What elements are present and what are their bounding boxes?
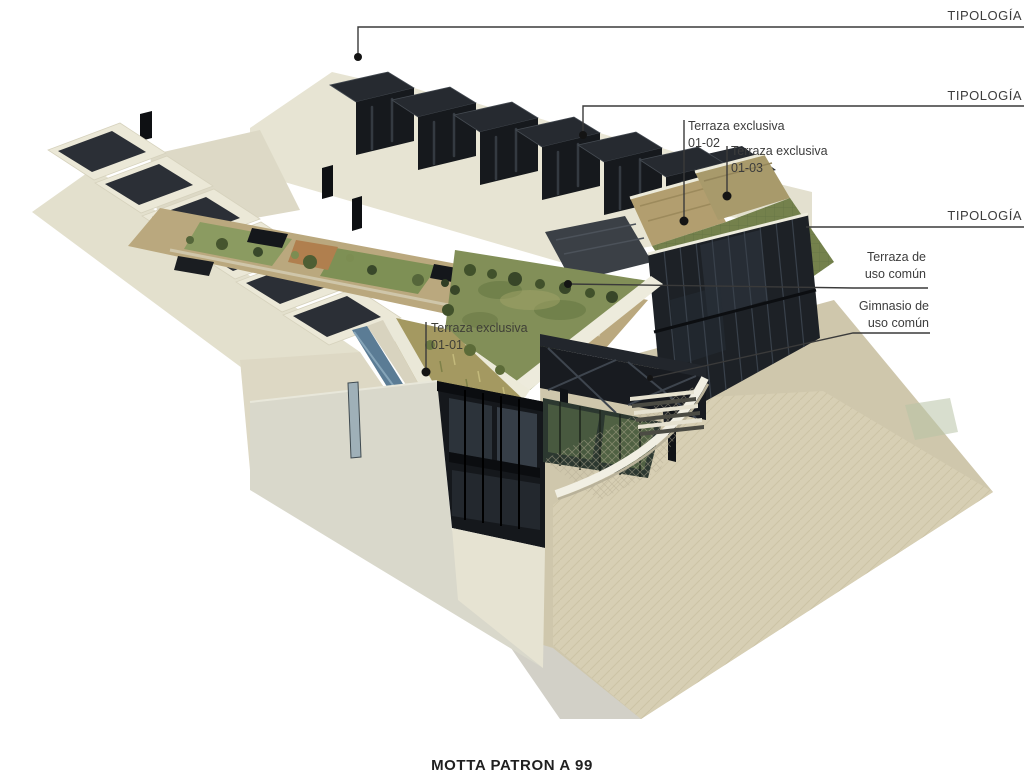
callout-terraza-01-03: Terraza exclusiva 01-03 <box>731 143 828 177</box>
building-illustration <box>0 0 1024 768</box>
callout-tipologia-mid: TIPOLOGÍA <box>722 88 1022 103</box>
callout-unit: 01-03 <box>731 160 828 177</box>
callout-title: Terraza exclusiva <box>431 320 528 337</box>
south-wall-lit <box>452 528 545 668</box>
callout-line2: uso común <box>865 266 926 283</box>
callout-line1: Terraza de <box>865 249 926 266</box>
callout-gimnasio-comun: Gimnasio de uso común <box>859 298 929 332</box>
callout-terraza-01-01: Terraza exclusiva 01-01 <box>431 320 528 354</box>
render-canvas: TIPOLOGÍA TIPOLOGÍA TIPOLOGÍA Terraza ex… <box>0 0 1024 768</box>
callout-line1: Gimnasio de <box>859 298 929 315</box>
callout-terraza-comun: Terraza de uso común <box>865 249 926 283</box>
callout-title: Terraza exclusiva <box>731 143 828 160</box>
callout-tipologia-top: TIPOLOGÍA <box>722 8 1022 23</box>
callout-title: Terraza exclusiva <box>688 118 785 135</box>
callout-line2: uso común <box>859 315 929 332</box>
caption-clipped: MOTTA PATRON A 99 <box>392 757 632 774</box>
callout-tipologia-low: TIPOLOGÍA <box>722 208 1022 223</box>
lower-glass-floors <box>437 381 545 548</box>
callout-unit: 01-01 <box>431 337 528 354</box>
